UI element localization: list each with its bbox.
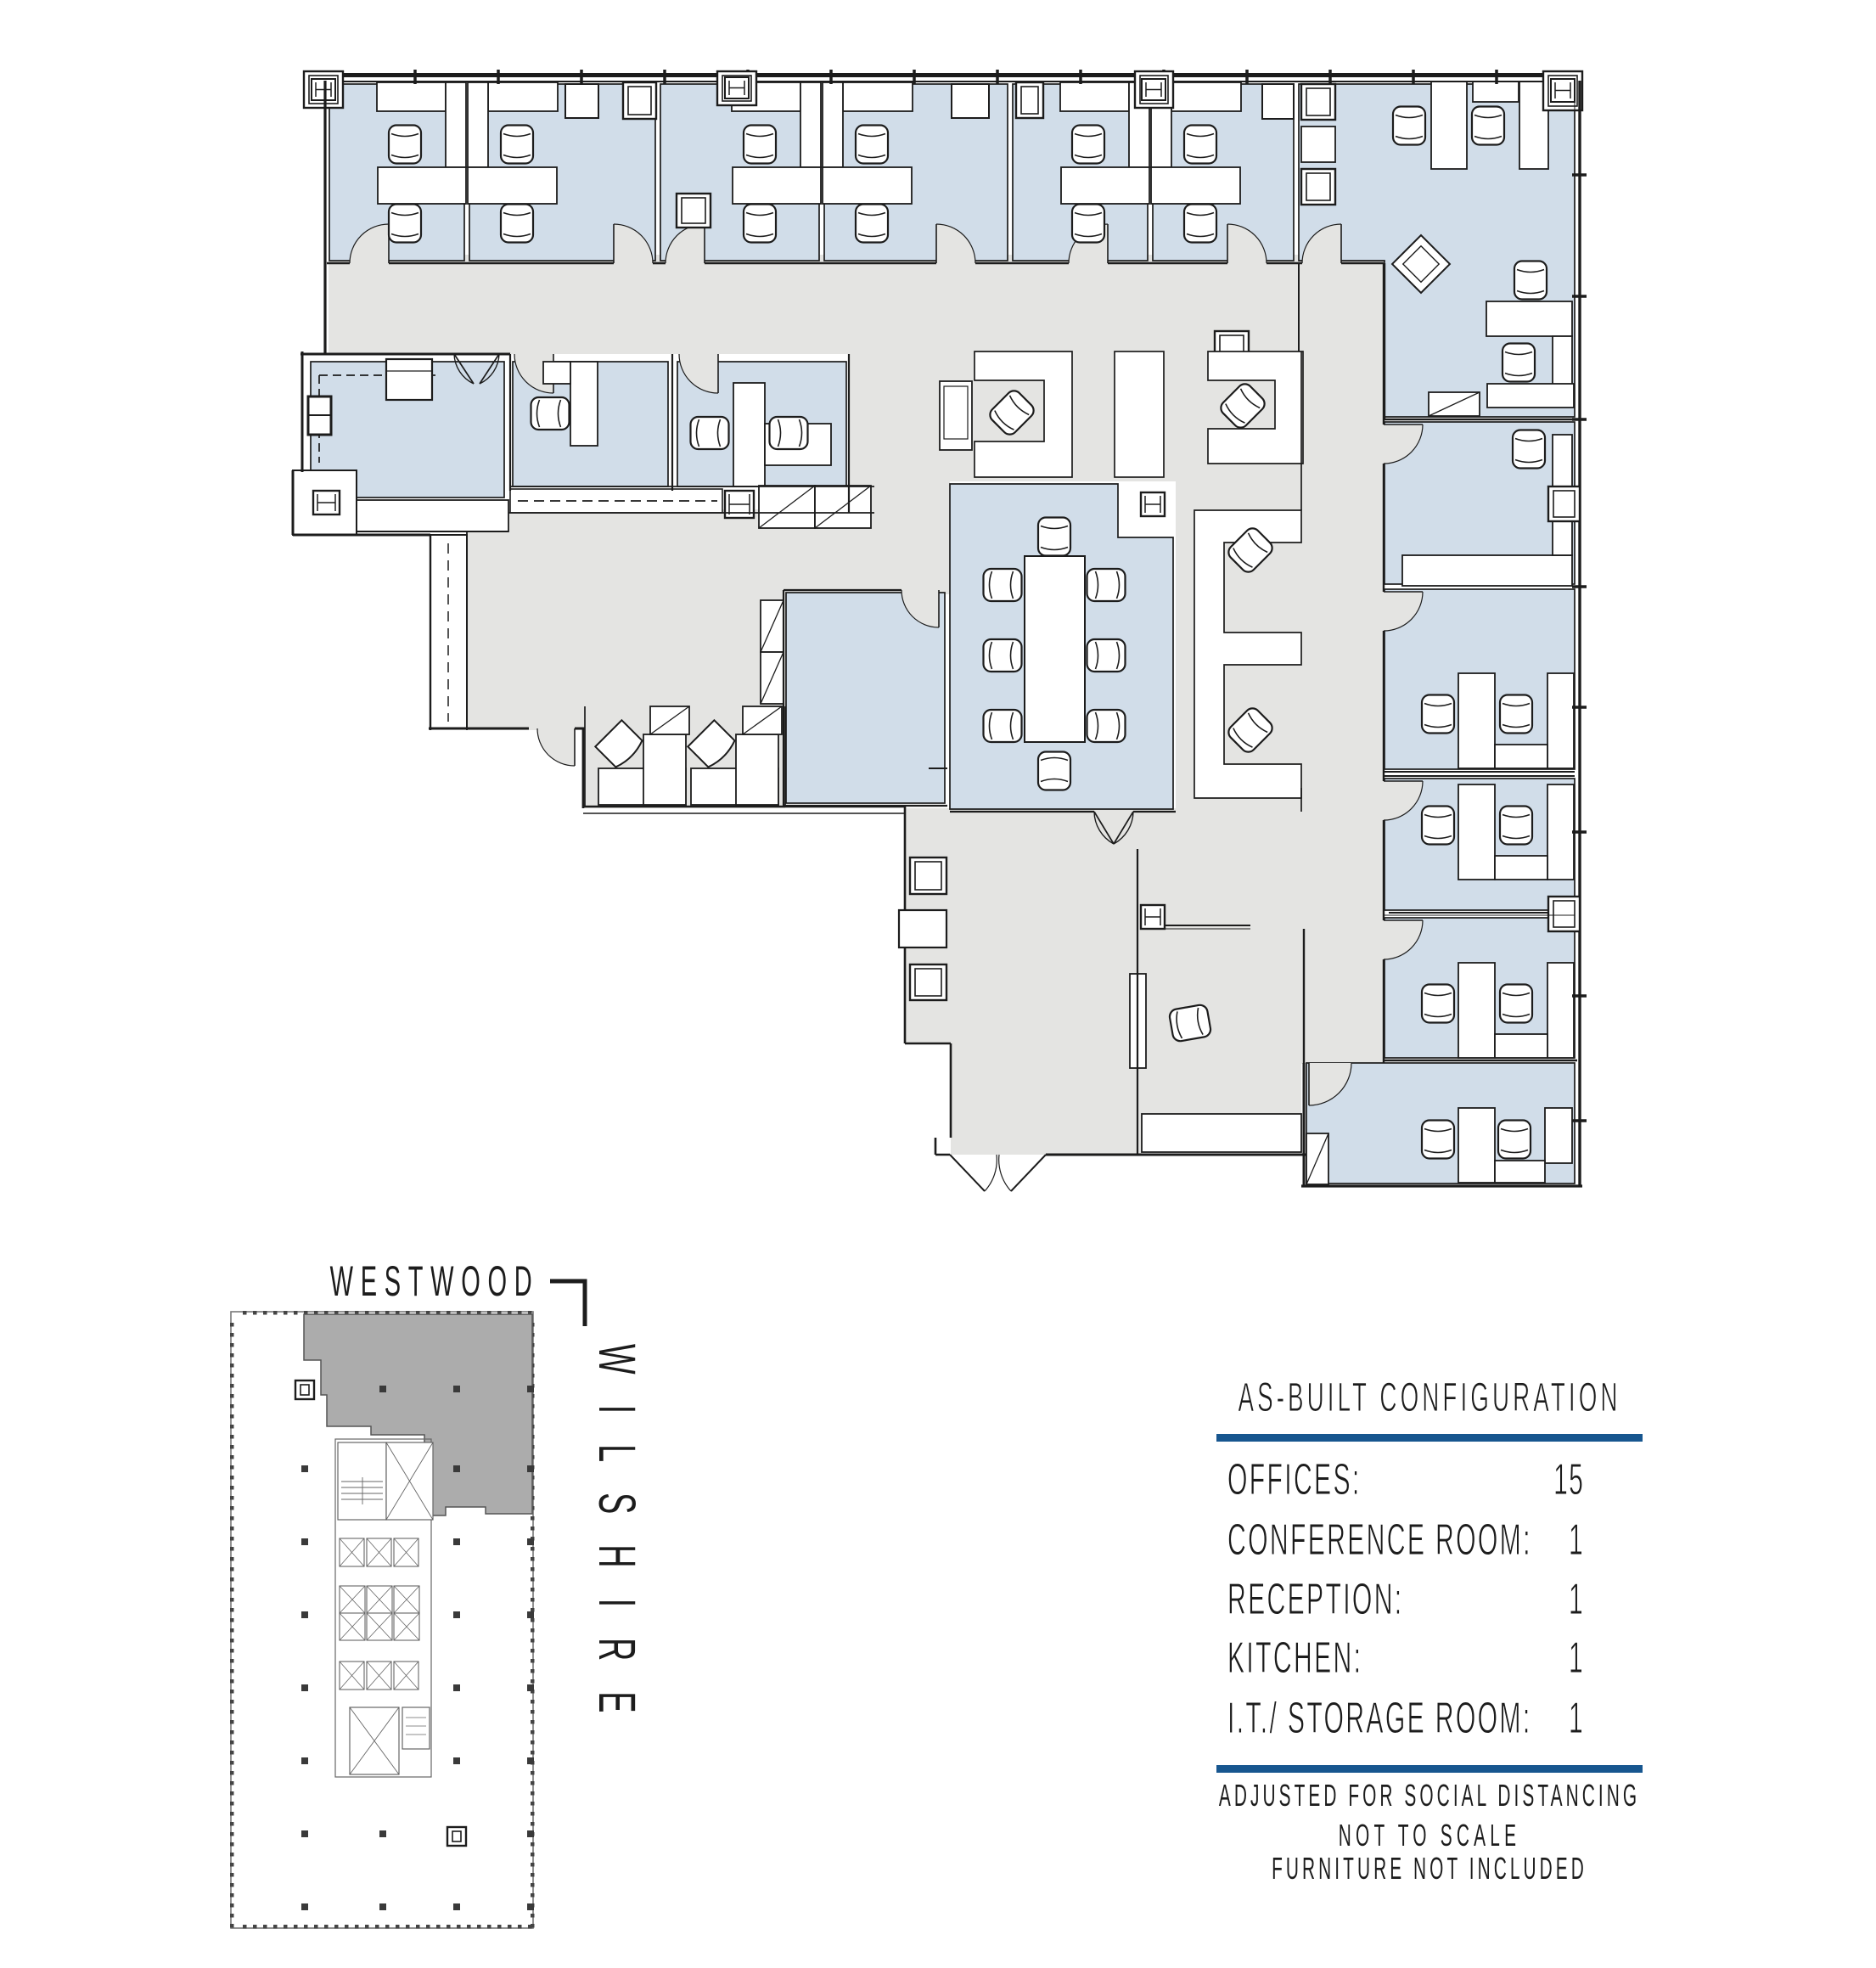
svg-text:1: 1: [1569, 1516, 1584, 1565]
svg-text:AS-BUILT CONFIGURATION: AS-BUILT CONFIGURATION: [1238, 1375, 1620, 1420]
svg-text:1: 1: [1569, 1695, 1584, 1743]
svg-text:OFFICES:: OFFICES:: [1227, 1456, 1362, 1504]
svg-text:WESTWOOD: WESTWOOD: [330, 1257, 540, 1305]
svg-text:NOT TO SCALE: NOT TO SCALE: [1339, 1819, 1521, 1853]
svg-text:FURNITURE NOT INCLUDED: FURNITURE NOT INCLUDED: [1272, 1852, 1587, 1886]
svg-text:WILSHIRE: WILSHIRE: [588, 1344, 647, 1744]
svg-text:RECEPTION:: RECEPTION:: [1227, 1576, 1404, 1624]
svg-text:1: 1: [1569, 1634, 1584, 1683]
svg-text:KITCHEN:: KITCHEN:: [1227, 1634, 1362, 1683]
svg-text:ADJUSTED FOR SOCIAL DISTANCING: ADJUSTED FOR SOCIAL DISTANCING: [1219, 1779, 1640, 1813]
svg-text:15: 15: [1553, 1456, 1584, 1504]
svg-text:I.T./ STORAGE ROOM:: I.T./ STORAGE ROOM:: [1227, 1695, 1532, 1743]
svg-text:CONFERENCE ROOM:: CONFERENCE ROOM:: [1227, 1516, 1532, 1565]
svg-text:1: 1: [1569, 1576, 1584, 1624]
